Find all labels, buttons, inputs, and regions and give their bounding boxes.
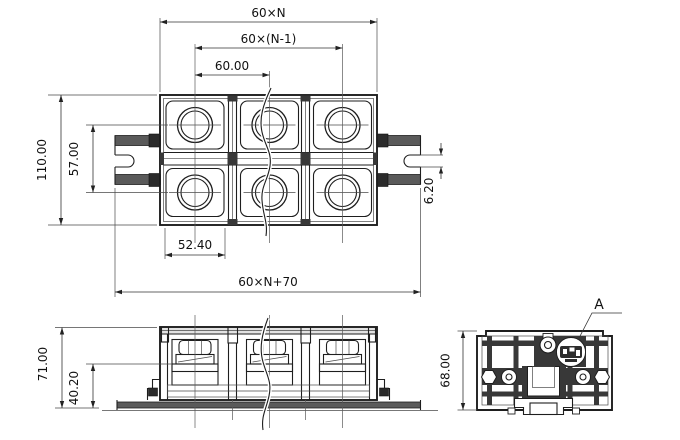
detail-a-label: A (594, 297, 604, 313)
dim-label-pole-pitch: 60.00 (215, 59, 249, 73)
rail-slot-right (404, 155, 410, 167)
screw-hole-left (502, 370, 517, 385)
front-view: 71.00 40.20 (36, 315, 438, 430)
din-clip (515, 399, 573, 415)
top-view: 60×N 60×(N-1) 60.00 110.00 57.00 (35, 6, 443, 297)
dim-slot-width: 6.20 (422, 143, 443, 204)
screw-hole-right (576, 370, 591, 385)
dim-label-overall-height: 71.00 (36, 347, 50, 381)
dim-label-opening-width: 52.40 (178, 238, 212, 252)
dim-body-height-end: 68.00 (439, 331, 478, 410)
dim-overall-height-front: 71.00 (36, 328, 157, 409)
rail-slot-left (128, 155, 134, 167)
end-view: 68.00 A (439, 297, 623, 415)
hex-nut-right (595, 371, 610, 384)
detail-a-callout: A (578, 297, 622, 340)
hex-nut-left (482, 371, 497, 384)
pole-centerlines-top (195, 44, 343, 243)
screw-hole-top (540, 337, 556, 353)
dim-label-body-depth: 110.00 (35, 139, 49, 181)
dim-label-contact-height: 40.20 (67, 371, 81, 405)
dim-total-pitch: 60×N (160, 6, 377, 92)
dim-label-pitch-n-minus-1: 60×(N-1) (241, 32, 297, 46)
dim-label-total-pitch: 60×N (251, 6, 285, 20)
technical-drawing-canvas: 60×N 60×(N-1) 60.00 110.00 57.00 (0, 0, 680, 440)
din-rail-front (102, 400, 438, 411)
dim-contact-height-front: 40.20 (67, 364, 172, 408)
dim-label-row-span: 57.00 (67, 142, 81, 176)
dim-label-body-height: 68.00 (439, 353, 453, 387)
dim-label-overall-length: 60×N+70 (238, 275, 298, 289)
dim-pitch-n-minus-1: 60×(N-1) (195, 32, 343, 50)
terminal-block-drawing: 60×N 60×(N-1) 60.00 110.00 57.00 (0, 0, 680, 440)
dim-body-depth: 110.00 (35, 95, 157, 225)
dim-label-slot-width: 6.20 (422, 178, 436, 205)
break-line-front (261, 318, 270, 430)
dim-pole-pitch: 60.00 (195, 59, 270, 77)
